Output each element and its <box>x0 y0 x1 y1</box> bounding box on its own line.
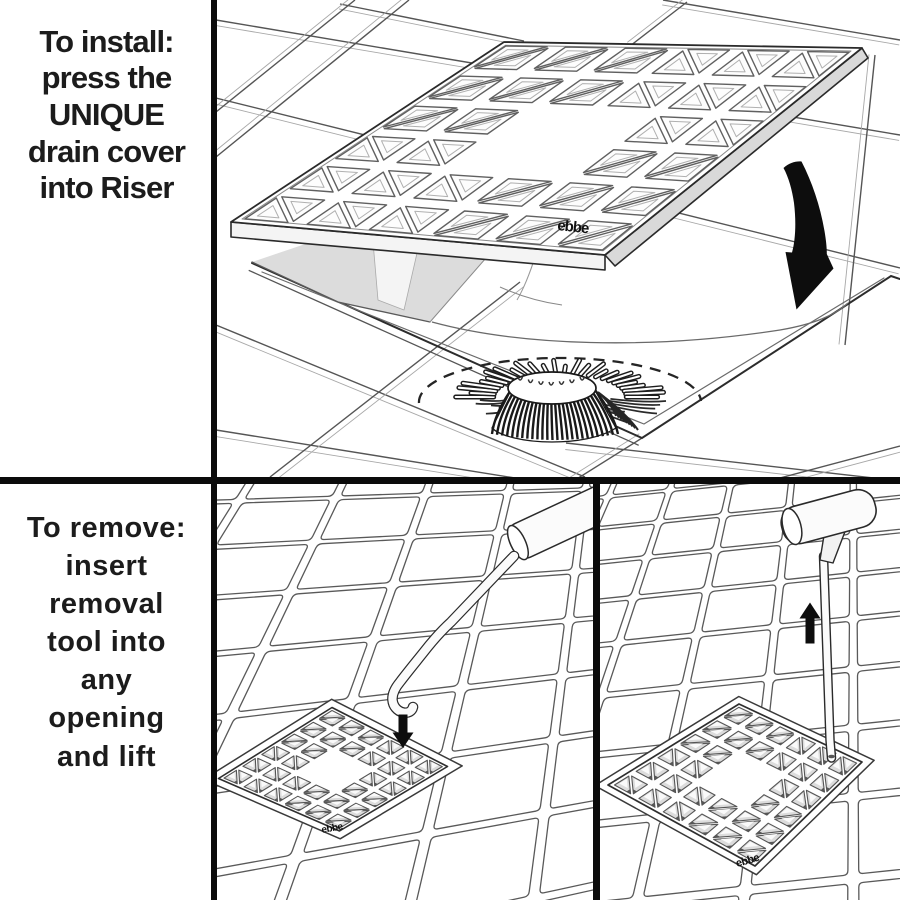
svg-text:ebbe: ebbe <box>557 217 590 237</box>
